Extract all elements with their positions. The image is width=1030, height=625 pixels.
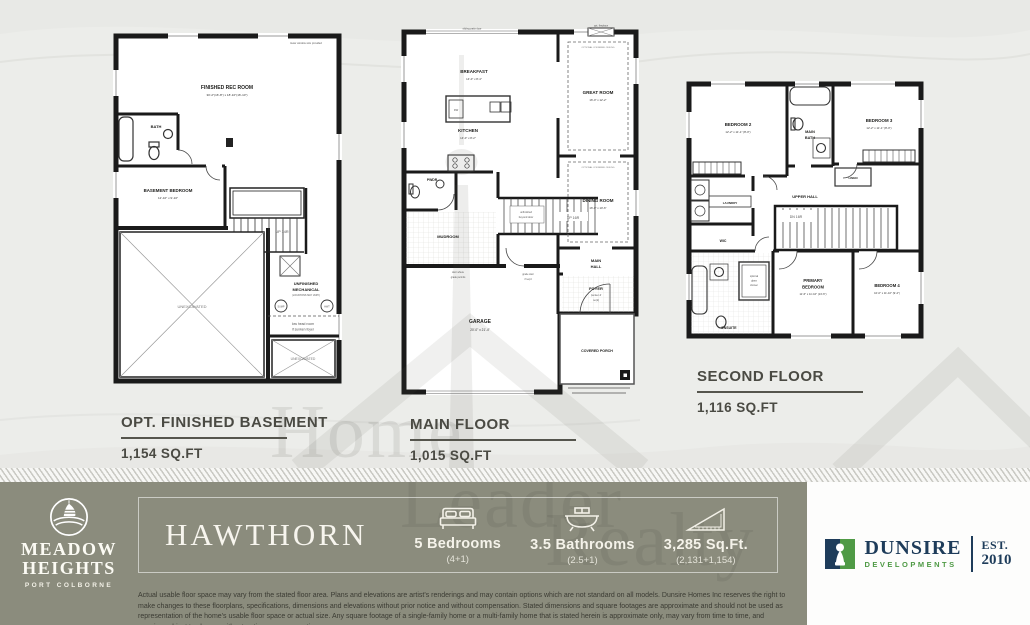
second-stairs xyxy=(775,206,897,250)
grade-stair-note-1: grade stair xyxy=(522,273,533,276)
dunsire-pawn-icon xyxy=(825,539,855,569)
grade-stair-note-2: if req'd xyxy=(524,278,532,281)
low-headroom-note-1: low head room xyxy=(292,322,314,326)
developer-type: DEVELOPMENTS xyxy=(864,561,961,569)
primary-bedroom-dims: 11'-6" x 11'-10" (13'-6") xyxy=(799,292,826,296)
mudroom-label: MUDROOM xyxy=(437,234,459,239)
bathrooms-value: 3.5 Bathrooms xyxy=(530,537,635,553)
floorplan-flyer: Home Leader Realty xyxy=(0,0,1030,625)
divider xyxy=(971,536,973,572)
primary-bedroom-label-1: PRIMARY xyxy=(803,278,822,283)
bath-icon xyxy=(562,505,602,533)
covered-porch xyxy=(560,314,634,393)
bedroom4-label: BEDROOM 4 xyxy=(874,283,900,288)
great-room-dims: 16'-0" x 12'-2" xyxy=(589,98,606,102)
bedrooms-sub: (4+1) xyxy=(414,554,501,565)
garage-dims: 20'-0" x 21'-4" xyxy=(470,328,490,332)
meadow-heights-logo: MEADOW HEIGHTS PORT COLBORNE xyxy=(0,482,138,625)
patio-door-note: sliding patio door xyxy=(463,28,482,31)
unexcavated-label-large: UNEXCAVATED xyxy=(177,304,206,309)
rec-room-label: FINISHED REC ROOM xyxy=(201,85,253,91)
stair-note-1: unfinished xyxy=(520,210,532,214)
community-name-line2: HEIGHTS xyxy=(0,559,138,578)
plan-name: HAWTHORN xyxy=(165,517,367,553)
hatch-divider-band xyxy=(0,468,1030,482)
bedroom4-dims: 10'-0" x 11'-10" (9'-4") xyxy=(874,291,900,295)
covered-porch-label: COVERED PORCH xyxy=(581,349,613,353)
main-stairs-label: UP 16R xyxy=(567,216,580,220)
primary-bedroom-label-2: BEDROOM xyxy=(802,285,824,290)
mechanical-label-2: MECHANICAL xyxy=(293,287,320,292)
sqft-value: 3,285 Sq.Ft. xyxy=(664,537,748,553)
basement-title: OPT. FINISHED BASEMENT xyxy=(121,414,328,431)
basement-window-note: lower window size provided xyxy=(290,41,322,45)
divider xyxy=(697,391,863,393)
rec-room-dims: 30'-2"(16'-8") x 18'-10"(16'-10") xyxy=(206,93,247,97)
shower-note-2: glass xyxy=(751,280,757,283)
main-bath-label-2: BATH xyxy=(805,136,816,140)
laundry-label: LAUNDRY xyxy=(723,201,738,205)
upper-hall-label: UPPER HALL xyxy=(792,194,818,199)
divider xyxy=(121,437,287,439)
furnace xyxy=(226,138,233,147)
breakfast-label: BREAKFAST xyxy=(460,69,488,74)
grade-door-note-1: door where xyxy=(452,271,465,274)
foyer-label: FOYER xyxy=(589,286,603,291)
ensuite-label: ENSUITE xyxy=(721,326,737,330)
main-hall-label-2: HALL xyxy=(591,264,602,269)
linen-label: LINEN xyxy=(849,176,858,180)
sailboat-emblem-icon xyxy=(48,496,90,538)
basement-floorplan: lower window size provided FINISHED REC … xyxy=(110,26,345,393)
community-name-line1: MEADOW xyxy=(0,540,138,559)
developer-name: DUNSIRE xyxy=(864,538,961,558)
bedroom2-dims: 12'-2" x 11'-1" (8'-0") xyxy=(725,130,750,134)
sqft-sub: (2,131+1,154) xyxy=(664,555,748,566)
second-title: SECOND FLOOR xyxy=(697,368,863,385)
basement-stairs-label: UP 14R xyxy=(275,230,288,234)
dining-room-dims: 16'-0" x 10'-6" xyxy=(589,206,606,210)
dw-label: DW xyxy=(454,108,459,112)
bedroom3-dims: 12'-2" x 11'-1" (8'-0") xyxy=(866,126,891,130)
second-stairs-label: DN 16R xyxy=(790,215,803,219)
basement-sqft: 1,154 SQ.FT xyxy=(121,446,328,461)
developer-panel: DUNSIRE DEVELOPMENTS EST. 2010 xyxy=(807,482,1030,625)
hwt-label: HWT xyxy=(324,306,330,309)
bath-label: BATH xyxy=(151,124,162,129)
kitchen-label: KITCHEN xyxy=(458,128,478,133)
divider xyxy=(410,439,576,441)
garage-label: GARAGE xyxy=(469,319,492,325)
stair-note-2: beyond door xyxy=(519,215,534,219)
wic-label: WIC xyxy=(720,239,727,243)
sump-label: SUMP xyxy=(278,306,285,309)
bathrooms-sub: (2.5+1) xyxy=(530,555,635,566)
bedroom2-label: BEDROOM 2 xyxy=(725,122,752,127)
plan-title-box: HAWTHORN 5 Bedrooms (4+1) xyxy=(138,497,778,573)
shower-note-1: optional xyxy=(750,275,759,278)
basement-caption: OPT. FINISHED BASEMENT 1,154 SQ.FT xyxy=(121,414,328,461)
coffered-note-dining: OPTIONAL COFFERED CEILING xyxy=(582,166,615,169)
basement-bedroom-label: BASEMENT BEDROOM xyxy=(144,188,193,193)
dunsire-logo: DUNSIRE DEVELOPMENTS EST. 2010 xyxy=(825,536,1011,572)
area-icon xyxy=(685,505,727,533)
main-sqft: 1,015 SQ.FT xyxy=(410,448,576,463)
stat-bathrooms: 3.5 Bathrooms (2.5+1) xyxy=(530,505,635,566)
dining-room-label: DINING ROOM xyxy=(583,198,614,203)
grade-door-note-2: grade permits xyxy=(451,276,466,279)
powder-room-label: PWDR xyxy=(427,178,438,182)
main-caption: MAIN FLOOR 1,015 SQ.FT xyxy=(410,416,576,463)
foyer-note-1: (sunken if xyxy=(591,294,602,297)
breakfast-dims: 14'-0" x 8'-4" xyxy=(466,77,482,81)
fireplace-note: opt. fireplace xyxy=(594,25,609,28)
main-hall-label-1: MAIN xyxy=(591,258,601,263)
second-sqft: 1,116 SQ.FT xyxy=(697,400,863,415)
main-title: MAIN FLOOR xyxy=(410,416,576,433)
bedrooms-value: 5 Bedrooms xyxy=(414,536,501,552)
main-bath-label-1: MAIN xyxy=(805,130,815,134)
great-room-label: GREAT ROOM xyxy=(583,90,614,95)
kitchen-dims: 14'-0" x 8'-2" xyxy=(460,136,476,140)
stats-row: 5 Bedrooms (4+1) 3.5 Bathrooms (2.5+1) xyxy=(367,505,777,566)
coffered-note-great: OPTIONAL COFFERED CEILING xyxy=(582,46,615,49)
mechanical-note: (LOCATIONS MAY VARY) xyxy=(292,294,320,297)
foyer-note-2: req'd) xyxy=(593,299,599,302)
second-caption: SECOND FLOOR 1,116 SQ.FT xyxy=(697,368,863,415)
basement-bedroom-dims: 12'-10" x 9'-10" xyxy=(158,196,178,200)
shower-note-3: shower xyxy=(750,284,758,287)
mechanical-label-1: UNFINISHED xyxy=(294,281,319,286)
bed-icon xyxy=(438,506,478,532)
community-subtitle: PORT COLBORNE xyxy=(0,582,138,589)
stat-bedrooms: 5 Bedrooms (4+1) xyxy=(414,506,501,565)
main-floorplan: sliding patio door opt. fireplace BREAKF… xyxy=(398,22,643,402)
bedroom3-label: BEDROOM 3 xyxy=(866,118,893,123)
second-floorplan: BEDROOM 2 12'-2" x 11'-1" (8'-0") BEDROO… xyxy=(683,76,928,344)
unexcavated-label-small: UNEXCAVATED xyxy=(291,357,316,361)
stat-sqft: 3,285 Sq.Ft. (2,131+1,154) xyxy=(664,505,748,566)
established-year: 2010 xyxy=(982,553,1012,568)
disclaimer-text: Actual usable floor space may vary from … xyxy=(138,591,786,625)
low-headroom-note-2: if sunken foyer xyxy=(292,328,315,332)
established-label: EST. xyxy=(982,539,1012,551)
